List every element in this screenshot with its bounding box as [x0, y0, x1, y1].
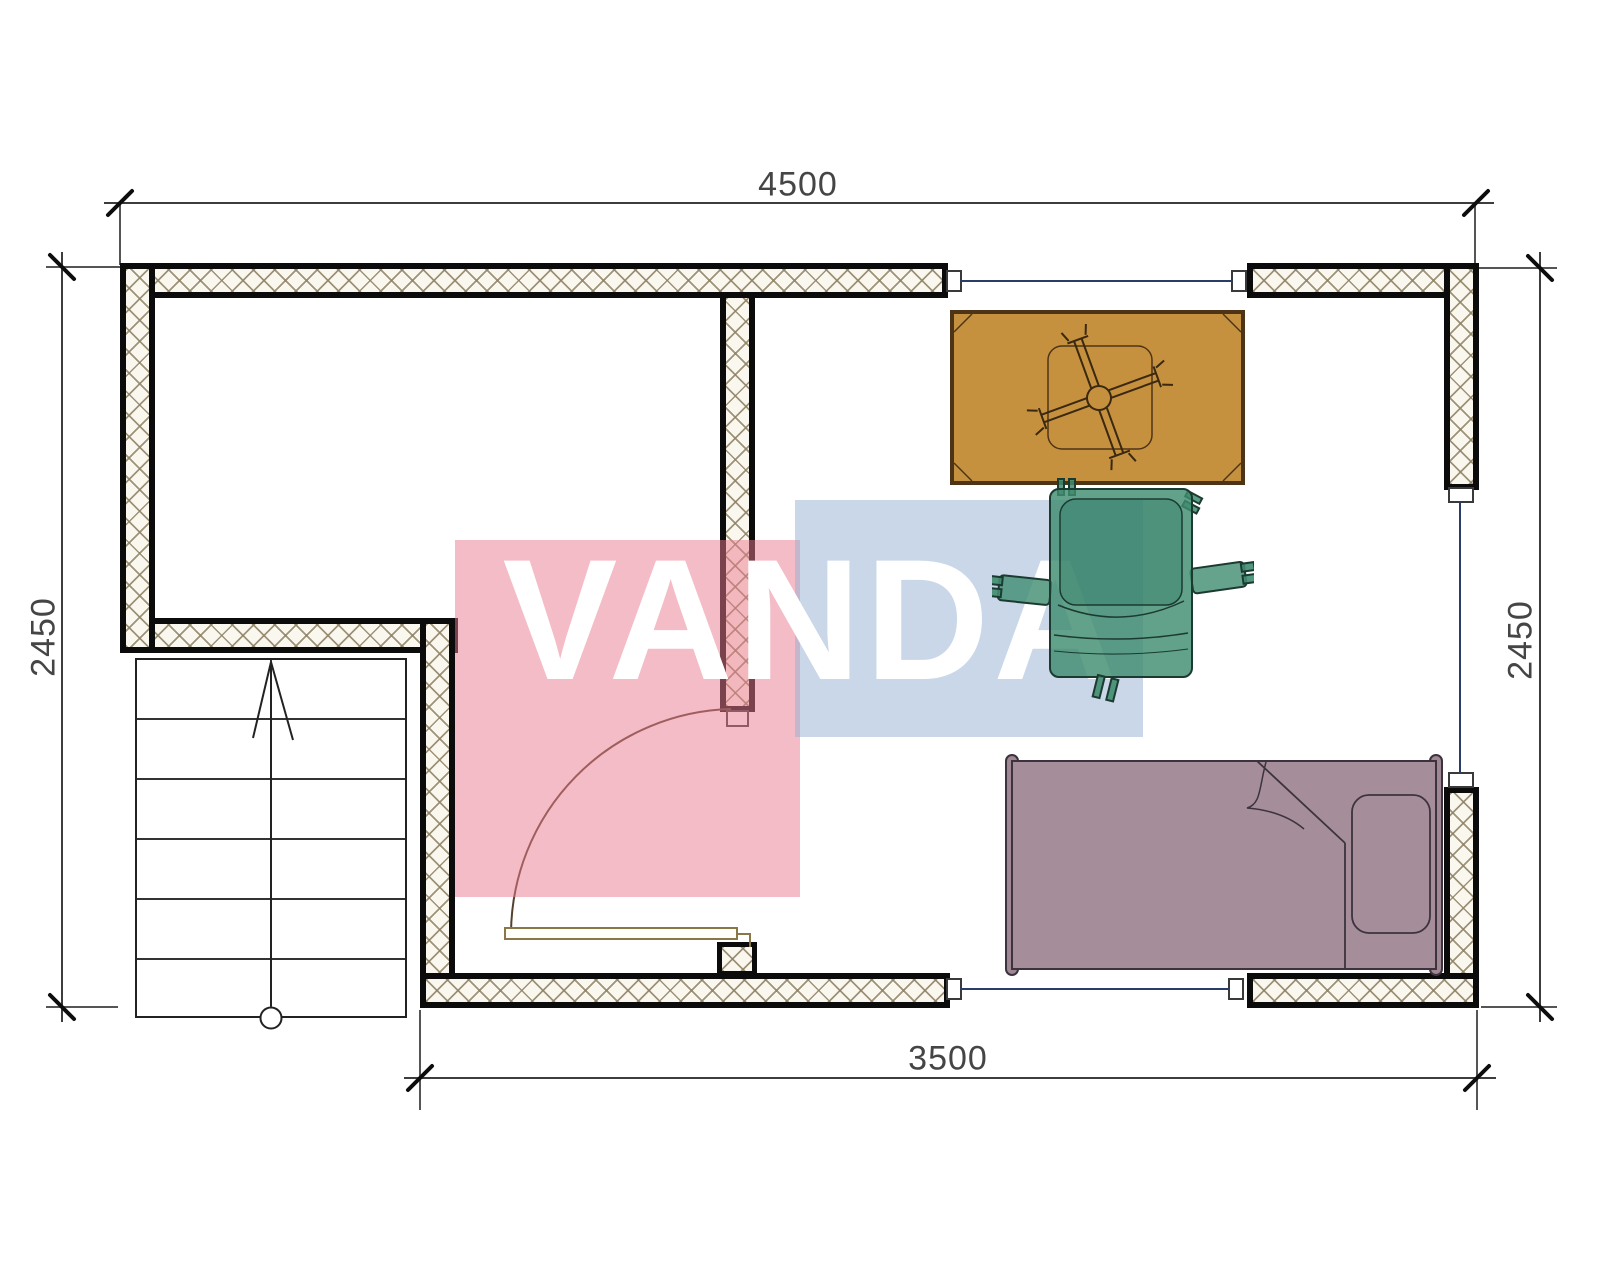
extension-line	[1481, 1006, 1557, 1008]
wall-top-main	[120, 263, 948, 298]
door-leaf	[505, 928, 737, 939]
window-right	[1459, 501, 1461, 774]
extension-line	[1476, 1010, 1478, 1110]
armrest-right	[1190, 560, 1254, 594]
extension-line	[1474, 203, 1476, 265]
window-bottom	[960, 988, 1230, 990]
extension-line	[46, 1006, 118, 1008]
dimension-label-left: 2450	[25, 597, 64, 677]
extension-line	[46, 266, 120, 268]
stair-direction-arrow	[135, 656, 407, 1036]
window-jamb	[1448, 487, 1474, 503]
dimension-label-right: 2450	[1502, 600, 1541, 680]
wall-left	[120, 263, 155, 653]
armchair	[992, 477, 1254, 709]
table	[950, 310, 1245, 485]
wall-bottom-main	[420, 973, 950, 1008]
bed	[1000, 750, 1448, 980]
window-jamb	[1228, 978, 1244, 1000]
window-jamb	[1231, 270, 1247, 292]
floor-plan-canvas: 4500 3500 2450 2450	[0, 0, 1600, 1280]
wall-right-upper	[1444, 263, 1479, 490]
dimension-label-top: 4500	[758, 166, 838, 205]
window-top	[960, 280, 1233, 282]
extension-line	[419, 1010, 421, 1110]
armchair-backrest	[1060, 499, 1182, 605]
window-jamb	[1448, 772, 1474, 788]
armrest-left	[992, 574, 1052, 605]
bed-pillow	[1352, 795, 1430, 933]
extension-line	[1477, 267, 1557, 269]
extension-line	[119, 203, 121, 265]
dimension-label-bottom: 3500	[908, 1040, 988, 1079]
wall-room-bottom	[120, 618, 458, 653]
